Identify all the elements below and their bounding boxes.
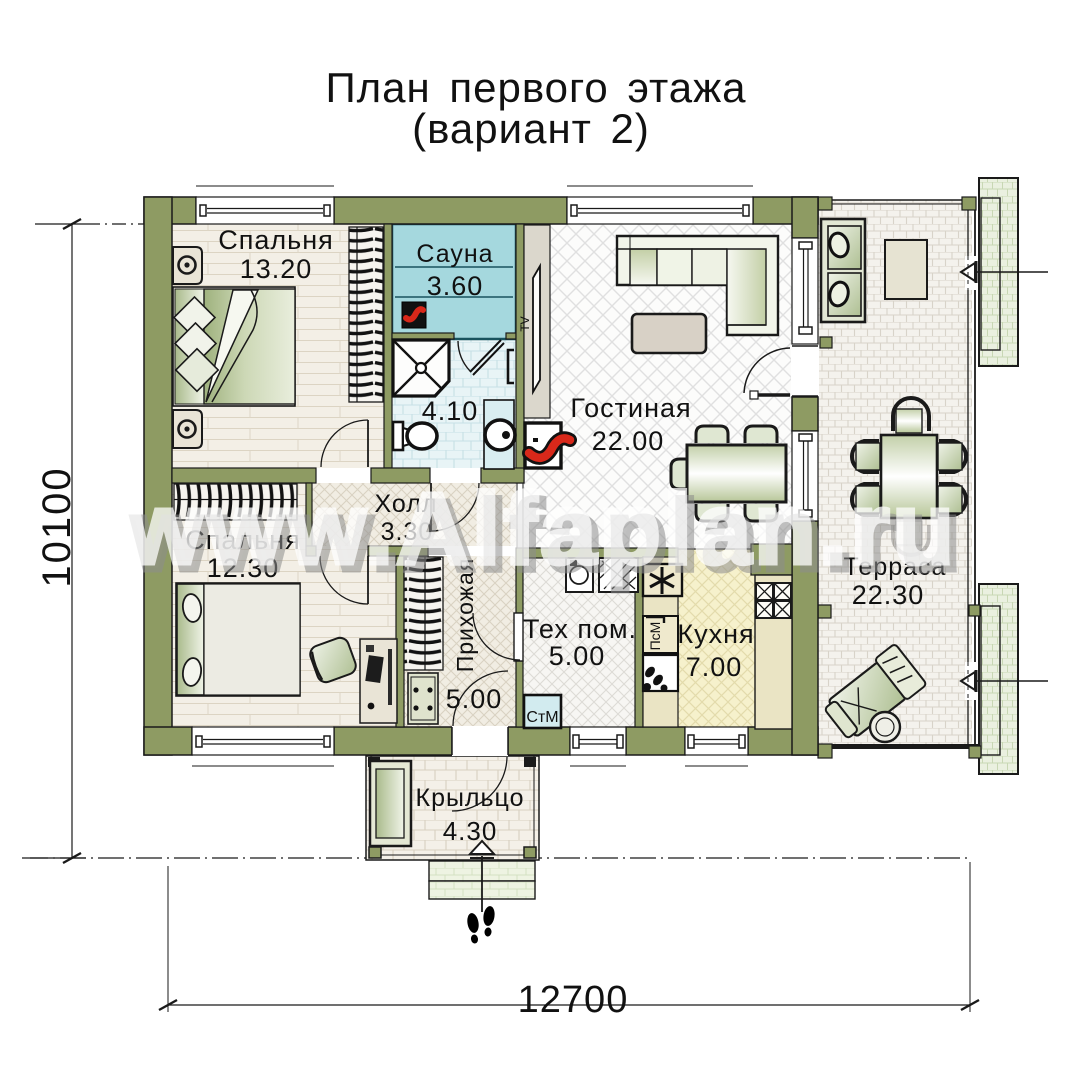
svg-text:13.20: 13.20 <box>240 254 313 284</box>
svg-text:(вариант 2): (вариант 2) <box>412 105 650 152</box>
svg-text:5.00: 5.00 <box>446 684 503 714</box>
svg-text:4.10: 4.10 <box>422 396 479 426</box>
svg-text:7.00: 7.00 <box>686 652 743 682</box>
svg-text:TV: TV <box>518 316 532 331</box>
svg-text:5.00: 5.00 <box>549 641 606 671</box>
svg-text:План первого этажа: План первого этажа <box>325 64 746 111</box>
svg-text:Кухня: Кухня <box>677 619 754 649</box>
svg-text:Тех пом.: Тех пом. <box>523 614 637 644</box>
svg-text:3.60: 3.60 <box>427 271 484 301</box>
svg-text:Спальня: Спальня <box>218 225 334 255</box>
svg-text:Гостиная: Гостиная <box>570 393 691 423</box>
svg-text:СтМ: СтМ <box>526 709 558 726</box>
svg-text:4.30: 4.30 <box>443 816 498 846</box>
svg-text:Сауна: Сауна <box>416 240 493 268</box>
svg-text:12700: 12700 <box>518 979 629 1021</box>
svg-text:www.Alfaplan.ru: www.Alfaplan.ru <box>124 473 957 585</box>
svg-text:ПсМ: ПсМ <box>647 622 663 651</box>
svg-text:10100: 10100 <box>35 466 79 587</box>
svg-text:22.00: 22.00 <box>592 426 665 456</box>
